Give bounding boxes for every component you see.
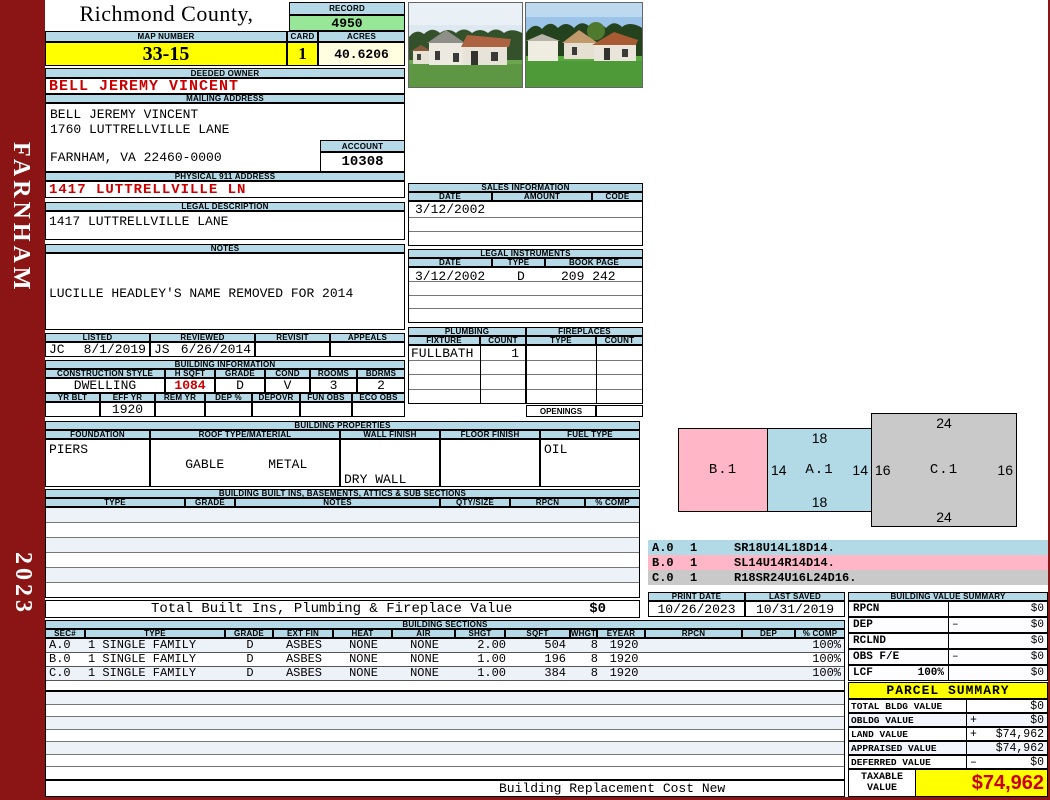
bvs-row: RPCN $0 — [848, 601, 1048, 617]
plumbing-row — [409, 375, 525, 390]
record-number: 4950 — [289, 15, 405, 31]
sketch-b1-id: B.1 — [709, 462, 737, 478]
bs-whgt-label: WHGT — [570, 629, 597, 638]
built-ins-comp-label: % COMP — [585, 498, 640, 507]
bvs-value: $0 — [1031, 667, 1044, 679]
empty-row — [46, 717, 844, 730]
cond-value: V — [265, 378, 310, 393]
bvs-label: RCLND — [853, 635, 886, 647]
built-ins-type-label: TYPE — [45, 498, 185, 507]
sketch-a1-bottom-dim: 18 — [768, 494, 871, 510]
bs-cell: NONE — [334, 653, 393, 666]
account-number: 10308 — [320, 152, 405, 172]
empty-row — [46, 767, 844, 779]
sketch-c1-top-dim: 24 — [872, 415, 1016, 431]
sketch-section-b1: B.1 — [678, 428, 768, 512]
construction-style-value: DWELLING — [45, 378, 165, 393]
yr-blt-label: YR BLT — [45, 393, 100, 402]
sketch-c1-bottom-dim: 24 — [872, 509, 1016, 525]
sketch-c1-id: C.1 — [930, 462, 958, 478]
sketch-a1-right-dim: 14 — [852, 462, 868, 478]
card-number-value: 1 — [287, 42, 318, 66]
bs-cell: C.0 — [49, 667, 71, 680]
plumbing-row — [409, 361, 525, 376]
bs-cell: 8 — [566, 667, 598, 680]
built-ins-total-label: Total Built Ins, Plumbing & Fireplace Va… — [151, 601, 512, 617]
sketch-legend-row: C.0 1 R18SR24U16L24D16. — [648, 570, 1048, 585]
bvs-label: LCF — [853, 667, 873, 679]
acres-value: 40.6206 — [318, 42, 405, 66]
footer-text: Building Replacement Cost New — [499, 781, 725, 796]
empty-row — [46, 583, 639, 597]
bvs-op: – — [952, 619, 959, 631]
bs-cell: 100% — [791, 639, 841, 652]
plumbing-row: FULLBATH 1 — [409, 346, 525, 361]
mailing-line: FARNHAM, VA 22460-0000 — [50, 150, 222, 165]
parcel-summary-row: APPRAISED VALUE $74,962 — [848, 741, 1048, 755]
floor-finish-label: FLOOR FINISH — [440, 430, 540, 439]
cond-label: COND — [265, 369, 310, 378]
plumbing-title: PLUMBING — [408, 327, 526, 336]
rooms-value: 3 — [310, 378, 357, 393]
bvs-value: $0 — [1031, 603, 1044, 615]
built-ins-qty-label: QTY/SIZE — [440, 498, 510, 507]
parcel-row-value: $0 — [1030, 756, 1044, 769]
eco-obs-value — [352, 402, 405, 417]
notes-label: NOTES — [45, 244, 405, 253]
building-information-title: BUILDING INFORMATION — [45, 360, 405, 369]
parcel-row-op: + — [970, 714, 977, 727]
revisit-value — [255, 342, 330, 357]
listed-date: 8/1/2019 — [84, 342, 146, 357]
h-sqft-value: 1084 — [165, 378, 215, 393]
legend-count: 1 — [690, 571, 697, 585]
roof-material-value: METAL — [268, 457, 307, 472]
acres-label: ACRES — [318, 31, 405, 42]
bvs-value: $0 — [1031, 619, 1044, 631]
bvs-row: RCLND $0 — [848, 633, 1048, 649]
bs-cell: 196 — [506, 653, 566, 666]
revisit-label: REVISIT — [255, 333, 330, 342]
notes-box: LUCILLE HEADLEY'S NAME REMOVED FOR 2014 … — [45, 253, 405, 330]
dep-pct-label: DEP % — [205, 393, 252, 402]
bs-cell: D — [226, 639, 274, 652]
sketch-legend-row: A.0 1 SR18U14L18D14. — [648, 540, 1048, 555]
notes-line: LUCILLE HEADLEY'S NAME REMOVED FOR 2014 — [49, 286, 401, 301]
bs-cell: 100% — [791, 667, 841, 680]
bs-cell: ASBES — [274, 639, 334, 652]
building-sections-table: A.01 SINGLE FAMILYDASBESNONENONE2.005048… — [45, 638, 845, 691]
empty-row — [46, 705, 844, 718]
parcel-row-value: $74,962 — [996, 728, 1044, 741]
bs-type-label: TYPE — [85, 629, 225, 638]
plumbing-rows: FULLBATH 1 — [408, 345, 526, 404]
fun-obs-label: FUN OBS — [300, 393, 352, 402]
district-sidebar-label: FARNHAM — [7, 142, 34, 294]
parcel-summary-row: LAND VALUE +$74,962 — [848, 727, 1048, 741]
bs-cell: 8 — [566, 653, 598, 666]
sketch-c1-right-dim: 16 — [997, 462, 1013, 478]
bs-cell: NONE — [393, 653, 456, 666]
legend-section: A.0 — [652, 541, 674, 555]
print-date-label: PRINT DATE — [648, 592, 745, 601]
property-record-card: FARNHAM 2023 Richmond County, Virginia C… — [0, 0, 1050, 800]
bs-eyear-label: EYEAR — [597, 629, 645, 638]
built-ins-rpcn-label: RPCN — [510, 498, 585, 507]
bs-cell: ASBES — [274, 653, 334, 666]
fun-obs-value — [300, 402, 352, 417]
sales-row: 3/12/2002 — [409, 202, 642, 218]
property-photo-1[interactable] — [408, 2, 523, 88]
bs-grade-label: GRADE — [225, 629, 273, 638]
legal-description-label: LEGAL DESCRIPTION — [45, 202, 405, 211]
construction-style-label: CONSTRUCTION STYLE — [45, 369, 165, 378]
account-label: ACCOUNT — [320, 140, 405, 152]
bs-cell: NONE — [393, 667, 456, 680]
bs-extfin-label: EXT FIN — [273, 629, 333, 638]
sales-date-label: DATE — [408, 192, 492, 201]
instrument-bookpage-label: BOOK PAGE — [545, 258, 643, 267]
fixture-label: FIXTURE — [408, 336, 480, 345]
legend-count: 1 — [690, 556, 697, 570]
bvs-label: RPCN — [853, 603, 879, 615]
bs-cell: 1.00 — [451, 667, 506, 680]
last-saved-value: 10/31/2019 — [745, 601, 845, 617]
bvs-row: OBS F/E –$0 — [848, 649, 1048, 665]
bvs-row: DEP –$0 — [848, 617, 1048, 633]
taxable-label-line: TAXABLE — [861, 772, 903, 783]
openings-value — [596, 405, 643, 417]
fireplace-rows — [526, 345, 643, 404]
fireplace-row — [527, 361, 642, 376]
eco-obs-label: ECO OBS — [352, 393, 405, 402]
property-photo-2-image — [526, 3, 643, 88]
fireplace-count-label: COUNT — [596, 336, 643, 345]
deeded-owner-label: DEEDED OWNER — [45, 68, 405, 78]
bvs-op: – — [952, 651, 959, 663]
parcel-row-label: TOTAL BLDG VALUE — [849, 700, 967, 712]
parcel-row-value: $0 — [1030, 714, 1044, 727]
foundation-label: FOUNDATION — [45, 430, 150, 439]
bvs-value: $0 — [1031, 651, 1044, 663]
sales-row — [409, 232, 642, 245]
footer-row: Building Replacement Cost New — [45, 780, 845, 797]
legal-instrument-row: 3/12/2002 D 209 242 — [409, 268, 642, 282]
bs-sec-label: SEC# — [45, 629, 85, 638]
bvs-extra: 100% — [918, 667, 944, 679]
listed-value: JC 8/1/2019 — [45, 342, 150, 357]
taxable-value-box: $74,962 — [915, 769, 1048, 797]
bs-heat-label: HEAT — [333, 629, 392, 638]
appeals-value — [330, 342, 405, 357]
built-ins-total-row: Total Built Ins, Plumbing & Fireplace Va… — [45, 600, 640, 618]
bs-cell: 1920 — [602, 667, 646, 680]
appeals-label: APPEALS — [330, 333, 405, 342]
map-number-value: 33-15 — [45, 42, 287, 66]
taxable-value-label: TAXABLE VALUE — [848, 769, 916, 797]
fixture-count-value: 1 — [481, 346, 519, 361]
legal-instrument-row — [409, 296, 642, 310]
depovr-label: DEPOVR — [252, 393, 300, 402]
fireplace-row — [527, 346, 642, 361]
wall-finish-value: DRY WALL PLASTER — [340, 439, 440, 487]
reviewed-by: JS — [154, 342, 170, 357]
legend-section: C.0 — [652, 571, 674, 585]
bs-cell: 8 — [566, 639, 598, 652]
listed-label: LISTED — [45, 333, 150, 342]
bs-air-label: AIR — [392, 629, 455, 638]
fireplace-row — [527, 375, 642, 390]
empty-row — [46, 508, 639, 523]
bs-cell: 384 — [506, 667, 566, 680]
bs-cell: 504 — [506, 639, 566, 652]
mailing-line: 1760 LUTTRELLVILLE LANE — [50, 122, 229, 137]
legend-trace: R18SR24U16L24D16. — [734, 571, 856, 585]
legal-instrument-row — [409, 309, 642, 322]
grade-label: GRADE — [215, 369, 265, 378]
parcel-row-label: LAND VALUE — [849, 728, 967, 740]
instrument-type-label: TYPE — [492, 258, 545, 267]
bvs-value: $0 — [1031, 635, 1044, 647]
built-ins-notes-label: NOTES — [235, 498, 440, 507]
sales-code-label: CODE — [592, 192, 643, 201]
sketch-legend-row: B.0 1 SL14U14R14D14. — [648, 555, 1048, 570]
legend-trace: SL14U14R14D14. — [734, 556, 835, 570]
property-photo-2[interactable] — [525, 2, 643, 88]
reviewed-value: JS 6/26/2014 — [150, 342, 255, 357]
instrument-date-label: DATE — [408, 258, 492, 267]
sketch-section-c1: 24 16 C.1 16 24 — [871, 413, 1017, 527]
bs-cell: D — [226, 667, 274, 680]
roof-value: GABLEMETAL — [150, 439, 340, 487]
parcel-row-label: OBLDG VALUE — [849, 714, 967, 726]
listed-by: JC — [49, 342, 65, 357]
bs-cell: NONE — [334, 667, 393, 680]
legal-description-value: 1417 LUTTRELLVILLE LANE — [45, 211, 405, 240]
h-sqft-label: H SQFT — [165, 369, 215, 378]
empty-row — [46, 553, 639, 568]
reviewed-label: REVIEWED — [150, 333, 255, 342]
fixture-count-label: COUNT — [480, 336, 526, 345]
bottom-empty-rows — [45, 691, 845, 780]
parcel-row-value: $74,962 — [996, 742, 1044, 755]
bs-cell: 2.00 — [451, 639, 506, 652]
bdrms-label: BDRMS — [357, 369, 405, 378]
instrument-type: D — [517, 269, 525, 284]
floor-finish-value — [440, 439, 540, 487]
empty-row — [46, 523, 639, 538]
bs-cell: 100% — [791, 653, 841, 666]
foundation-value: PIERS — [45, 439, 150, 487]
parcel-row-op: – — [970, 756, 977, 769]
parcel-summary-row: OBLDG VALUE +$0 — [848, 713, 1048, 727]
empty-row — [46, 538, 639, 553]
parcel-row-label: DEFERRED VALUE — [849, 756, 967, 768]
reviewed-date: 6/26/2014 — [181, 342, 251, 357]
depovr-value — [252, 402, 300, 417]
parcel-row-label: APPRAISED VALUE — [849, 742, 967, 754]
bvs-label: DEP — [853, 619, 873, 631]
sketch-section-a1: 18 14 A.1 14 18 — [767, 428, 872, 512]
building-section-row: A.01 SINGLE FAMILYDASBESNONENONE2.005048… — [46, 639, 844, 653]
openings-label: OPENINGS — [526, 405, 596, 417]
rem-yr-label: REM YR — [155, 393, 205, 402]
legal-instruments-title: LEGAL INSTRUMENTS — [408, 249, 643, 258]
bs-cell: B.0 — [49, 653, 71, 666]
empty-row — [46, 568, 639, 583]
bs-cell: 1 SINGLE FAMILY — [88, 653, 196, 666]
plumbing-column-divider — [480, 345, 481, 404]
eff-yr-value: 1920 — [100, 402, 155, 417]
bs-dep-label: DEP — [742, 629, 795, 638]
sketch-a1-top-dim: 18 — [768, 430, 871, 446]
bs-cell: 1920 — [602, 639, 646, 652]
bs-cell: D — [226, 653, 274, 666]
tax-year-sidebar-label: 2023 — [9, 552, 36, 616]
card-label: CARD — [287, 31, 318, 42]
mailing-address-label: MAILING ADDRESS — [45, 94, 405, 103]
sketch-c1-left-dim: 16 — [875, 462, 891, 478]
map-number-label: MAP NUMBER — [45, 31, 287, 42]
building-section-row: B.01 SINGLE FAMILYDASBESNONENONE1.001968… — [46, 653, 844, 667]
building-value-summary-title: BUILDING VALUE SUMMARY — [848, 592, 1048, 601]
bs-cell: NONE — [393, 639, 456, 652]
parcel-summary-title: PARCEL SUMMARY — [848, 682, 1048, 699]
grade-value: D — [215, 378, 265, 393]
built-ins-total-value: $0 — [589, 601, 606, 617]
sketch-a1-left-dim: 14 — [771, 462, 787, 478]
bdrms-value: 2 — [357, 378, 405, 393]
physical-address-value: 1417 LUTTRELLVILLE LN — [45, 181, 405, 198]
parcel-row-value: $0 — [1030, 700, 1044, 713]
last-saved-label: LAST SAVED — [745, 592, 845, 601]
yr-blt-value — [45, 402, 100, 417]
legend-trace: SR18U14L18D14. — [734, 541, 835, 555]
eff-yr-label: EFF YR — [100, 393, 155, 402]
empty-row — [46, 730, 844, 743]
bs-cell: A.0 — [49, 639, 71, 652]
fireplace-type-label: TYPE — [526, 336, 596, 345]
parcel-row-op: + — [970, 728, 977, 741]
parcel-summary-row: DEFERRED VALUE –$0 — [848, 755, 1048, 769]
bs-sqft-label: SQFT — [505, 629, 570, 638]
rooms-label: ROOMS — [310, 369, 357, 378]
record-label: RECORD — [289, 2, 405, 15]
bs-rpcn-label: RPCN — [645, 629, 742, 638]
plumbing-row — [409, 390, 525, 404]
instrument-bookpage: 209 242 — [561, 269, 616, 284]
bs-cell: ASBES — [274, 667, 334, 680]
building-sections-title: BUILDING SECTIONS — [45, 620, 845, 629]
building-section-row: C.01 SINGLE FAMILYDASBESNONENONE1.003848… — [46, 667, 844, 681]
bs-cell: 1 SINGLE FAMILY — [88, 667, 196, 680]
sales-information-title: SALES INFORMATION — [408, 183, 643, 192]
bs-cell: 1.00 — [451, 653, 506, 666]
bs-shgt-label: SHGT — [455, 629, 505, 638]
property-photo-1-image — [409, 3, 523, 88]
empty-row — [46, 692, 844, 705]
fuel-type-value: OIL — [540, 439, 640, 487]
roof-type-label: ROOF TYPE/MATERIAL — [150, 430, 340, 439]
fixture-value: FULLBATH — [411, 346, 473, 361]
deeded-owner-value: BELL JEREMY VINCENT — [45, 78, 405, 94]
legal-instrument-rows: 3/12/2002 D 209 242 — [408, 267, 643, 323]
physical-address-label: PHYSICAL 911 ADDRESS — [45, 172, 405, 181]
bs-cell: NONE — [334, 639, 393, 652]
bs-cell: 1 SINGLE FAMILY — [88, 639, 196, 652]
sales-rows: 3/12/2002 — [408, 201, 643, 246]
built-ins-empty-rows — [45, 507, 640, 598]
built-ins-title: BUILDING BUILT INS, BASEMENTS, ATTICS & … — [45, 489, 640, 498]
sales-amount-label: AMOUNT — [492, 192, 592, 201]
built-ins-grade-label: GRADE — [185, 498, 235, 507]
bvs-row: LCF100% $0 — [848, 665, 1048, 681]
parcel-summary-row: TOTAL BLDG VALUE $0 — [848, 699, 1048, 713]
taxable-label-line: VALUE — [867, 783, 897, 794]
wall-finish-label: WALL FINISH — [340, 430, 440, 439]
bvs-label: OBS F/E — [853, 651, 899, 663]
fireplace-row — [527, 390, 642, 404]
roof-type-value: GABLE — [185, 457, 224, 472]
sales-row — [409, 218, 642, 232]
mailing-line: BELL JEREMY VINCENT — [50, 107, 198, 122]
empty-row — [46, 755, 844, 768]
instrument-date: 3/12/2002 — [415, 269, 485, 284]
fuel-type-label: FUEL TYPE — [540, 430, 640, 439]
legend-count: 1 — [690, 541, 697, 555]
empty-row — [46, 742, 844, 755]
taxable-value: $74,962 — [972, 772, 1044, 795]
fireplace-column-divider — [596, 345, 597, 404]
rem-yr-value — [155, 402, 205, 417]
bs-cell: 1920 — [602, 653, 646, 666]
fireplaces-title: FIREPLACES — [526, 327, 643, 336]
legend-section: B.0 — [652, 556, 674, 570]
wall-finish-line: DRY WALL — [344, 472, 436, 487]
building-properties-title: BUILDING PROPERTIES — [45, 421, 640, 430]
sketch-a1-id: A.1 — [805, 462, 833, 478]
dep-pct-value — [205, 402, 252, 417]
bs-comp-label: % COMP — [795, 629, 845, 638]
print-date-value: 10/26/2023 — [648, 601, 745, 617]
